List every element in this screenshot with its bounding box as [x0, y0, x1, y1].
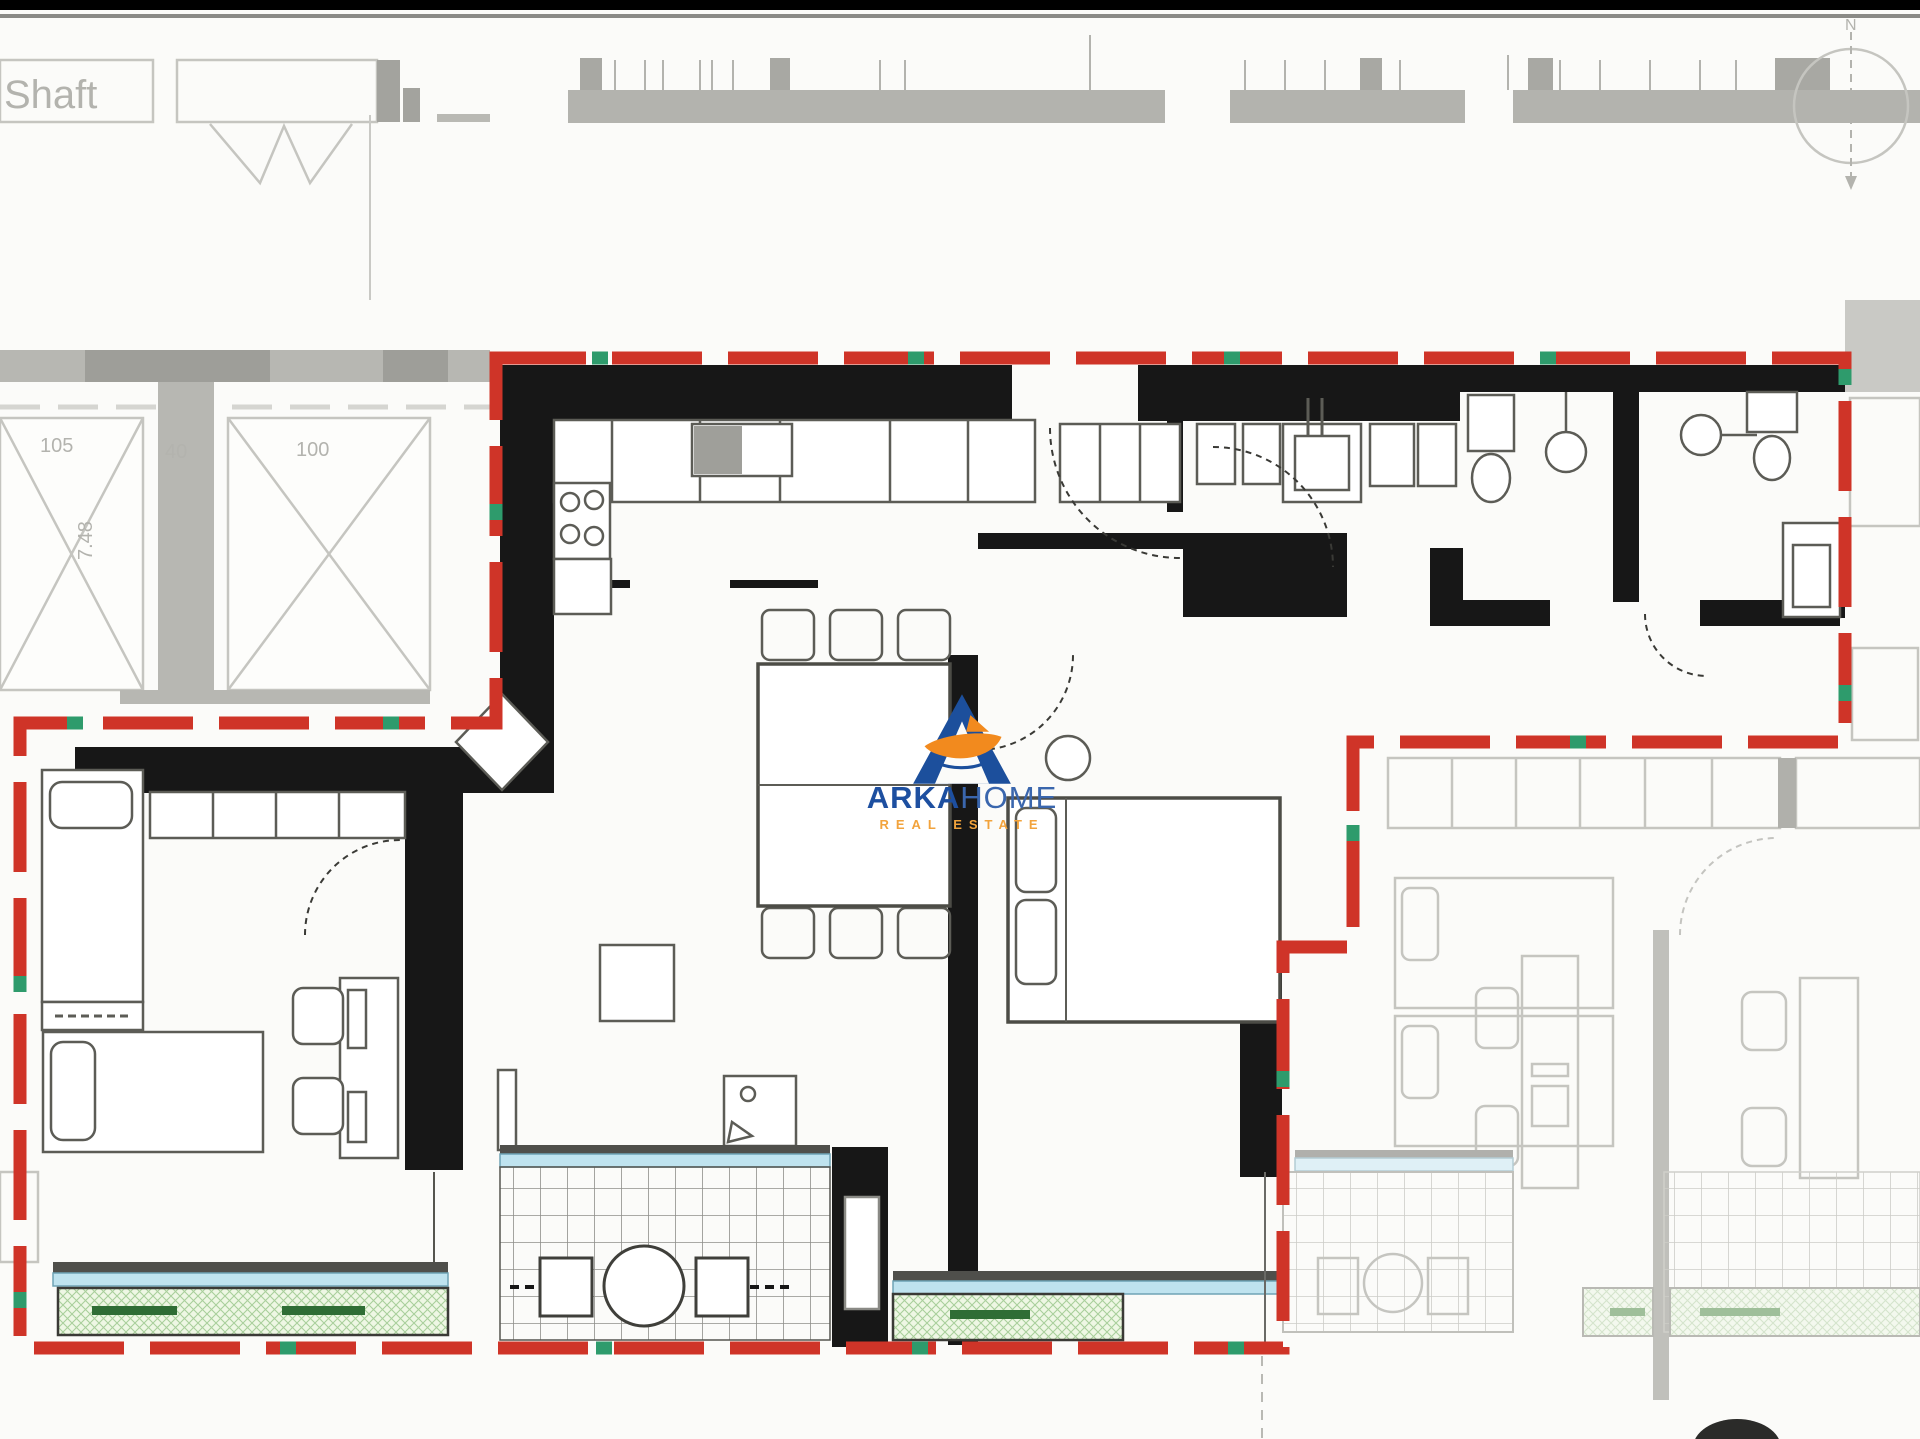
- logo-tagline: REAL ESTATE: [830, 817, 1094, 832]
- desk-chair-1: [293, 988, 343, 1044]
- single-bed-2: [43, 1032, 263, 1152]
- hallway-closets: [1060, 424, 1456, 502]
- single-bed-1: [42, 770, 143, 1002]
- logo-brand-primary: ARKA: [867, 780, 961, 815]
- window-strip-1: [53, 1273, 448, 1286]
- faded-section-strip: Shaft: [0, 35, 1920, 300]
- balcony-door-leaf: [845, 1197, 879, 1309]
- arkahome-logo-text: ARKAHOME: [830, 782, 1094, 813]
- living-room: [456, 694, 796, 1150]
- balcony-chair-2: [696, 1258, 748, 1316]
- balcony-table: [604, 1246, 684, 1326]
- dim-shaft-gap: 40: [165, 441, 187, 463]
- shaft-label: Shaft: [4, 73, 97, 117]
- compass-north-label: N: [1845, 17, 1857, 34]
- bathroom-1: [1468, 392, 1586, 502]
- logo-brand-secondary: HOME: [960, 780, 1057, 815]
- wardrobe-row: [150, 792, 405, 838]
- dim-shaft-right: 100: [296, 439, 329, 461]
- adjacent-dark-blob: [1693, 1419, 1781, 1439]
- top-border: [0, 0, 1920, 18]
- bath-door-arc: [1645, 614, 1707, 676]
- window-strip-2: [500, 1154, 830, 1167]
- side-table: [600, 945, 674, 1021]
- elevator-shafts: 105 40 100 7.48: [0, 350, 490, 704]
- toilet-1: [1468, 395, 1514, 451]
- south-facade: [53, 1145, 1283, 1343]
- kids-bedroom: [42, 770, 405, 1158]
- arkahome-logo-icon: [910, 692, 1014, 786]
- toilet-2: [1747, 392, 1797, 432]
- sink-1: [1546, 432, 1586, 472]
- window-strip-3: [893, 1281, 1283, 1294]
- bedroom-door-arc: [305, 840, 400, 935]
- arkahome-watermark: ARKAHOME REAL ESTATE: [830, 692, 1094, 832]
- balcony-chair-1: [540, 1258, 592, 1316]
- desk-chair-2: [293, 1078, 343, 1134]
- nightstand: [42, 1002, 143, 1030]
- adjacent-wardrobe: [1388, 758, 1920, 828]
- decor-plant: [724, 1076, 796, 1146]
- floor-plan-page: Shaft N: [0, 0, 1920, 1439]
- sink-2: [1681, 415, 1721, 455]
- bathroom-2: [1681, 392, 1840, 617]
- radiator: [498, 1070, 516, 1150]
- kitchen-stove: [554, 483, 611, 614]
- shower: [1783, 523, 1840, 617]
- desk: [340, 978, 398, 1158]
- dim-shaft-left: 105: [40, 435, 73, 457]
- dim-shaft-depth: 7.48: [75, 521, 97, 560]
